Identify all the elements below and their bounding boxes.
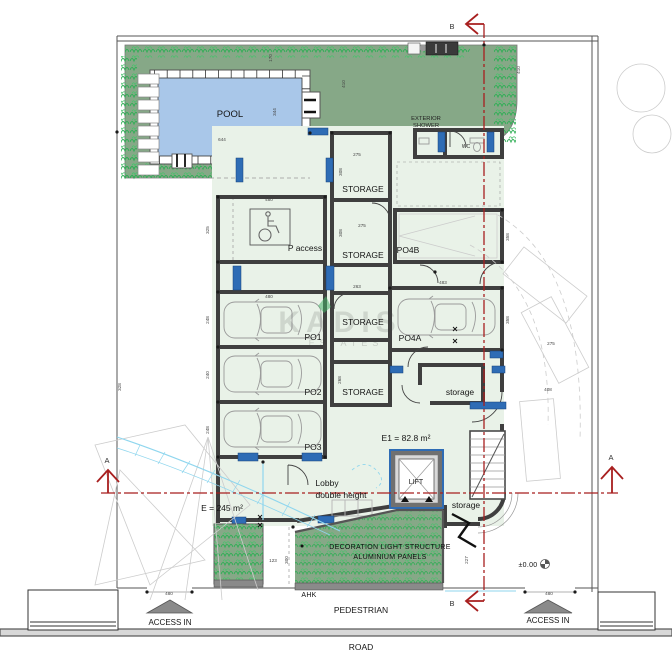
dimension-label: 268	[337, 376, 342, 384]
room-label-storage-small: storage	[446, 387, 475, 397]
dimension-label: 248	[205, 426, 210, 434]
dimension-label: 328	[117, 383, 122, 391]
level-label: ±0.00	[519, 562, 538, 569]
dimension-label: 308	[338, 229, 343, 237]
floor-plan-canvas: KADIS ESTATES POOL EXTERIOR SHOWER WC ST…	[0, 0, 672, 654]
dimension-label: 308	[338, 168, 343, 176]
ahk-label: AHK	[301, 592, 316, 599]
dimension-label: 410	[516, 66, 521, 74]
room-label-lobby-2: double height	[315, 490, 367, 500]
room-label-po4b: PO4B	[397, 245, 420, 255]
dimension-label: 358	[505, 233, 510, 241]
planter-left	[214, 524, 263, 587]
area-label-e: E = 245 m²	[201, 503, 243, 513]
decoration-label-2: ALUMINIUM PANELS	[353, 554, 426, 561]
room-label-pool: POOL	[217, 109, 243, 120]
room-label-lobby-1: Lobby	[315, 478, 339, 488]
dimension-label: 123	[269, 558, 277, 563]
dimension-label: 344	[272, 108, 277, 116]
room-label-exterior-shower-1: EXTERIOR	[411, 116, 441, 122]
dimension-label: 410	[341, 80, 346, 88]
section-label-b-top: B	[449, 22, 454, 31]
dimension-label: 325	[205, 226, 210, 234]
room-label-p-access: P access	[288, 243, 322, 253]
dimension-label: 644	[218, 137, 226, 142]
sidewalk-block-right	[598, 592, 655, 630]
staircase	[470, 431, 505, 499]
dimension-label: 263	[353, 284, 361, 289]
dimension-label: 483	[439, 280, 447, 285]
plot-boundary-right	[592, 36, 598, 592]
access-arrow-left	[147, 600, 192, 613]
dimension-label: 275	[358, 223, 366, 228]
dimension-label: 275	[547, 341, 555, 346]
dimension-label: 480	[265, 197, 273, 202]
tree-canopy-icon	[633, 115, 671, 153]
road-label: ROAD	[349, 642, 374, 652]
room-label-storage-2: STORAGE	[342, 250, 384, 260]
dimension-label: 275	[353, 152, 361, 157]
dimension-label: 408	[544, 387, 552, 392]
access-in-label-right: ACCESS IN	[526, 616, 569, 625]
sidewalk-block-left	[28, 590, 118, 630]
leader-dot	[301, 545, 304, 548]
pool-ladder	[172, 154, 192, 168]
room-label-storage-3: STORAGE	[342, 317, 384, 327]
dimension-label: 248	[205, 316, 210, 324]
room-label-storage-4: STORAGE	[342, 387, 384, 397]
area-label-e1: E1 = 82.8 m²	[382, 433, 431, 443]
tree-canopy-icon	[617, 64, 665, 112]
dimension-label: 227	[464, 556, 469, 564]
access-arrow-right	[525, 600, 572, 613]
access-in-label-left: ACCESS IN	[148, 618, 191, 627]
room-label-po4a: PO4A	[399, 333, 422, 343]
section-label-b-bottom: B	[449, 599, 454, 608]
section-label-a-right: A	[608, 453, 613, 462]
dimension-label: 170	[268, 54, 273, 62]
dimension-label: 358	[505, 316, 510, 324]
decoration-label-1: DECORATION LIGHT STRUCTURE	[329, 544, 451, 551]
garden-bench	[408, 42, 458, 55]
room-label-storage-entry: storage	[452, 500, 481, 510]
floor-plan-drawing: KADIS ESTATES POOL EXTERIOR SHOWER WC ST…	[0, 0, 672, 654]
dimension-label: 480	[165, 591, 173, 596]
room-label-lift: LIFT	[409, 479, 424, 486]
section-label-a-left: A	[104, 456, 109, 465]
dimension-label: 300	[284, 556, 289, 564]
room-label-po3: PO3	[304, 442, 321, 452]
room-label-po1: PO1	[304, 332, 321, 342]
pedestrian-label: PEDESTRIAN	[334, 605, 388, 615]
plot-boundary-top	[117, 36, 598, 41]
dimension-label: 480	[545, 591, 553, 596]
room-label-po2: PO2	[304, 387, 321, 397]
room-label-wc: WC	[462, 144, 471, 150]
pool-steps	[302, 92, 320, 118]
dimension-label: 240	[205, 371, 210, 379]
level-marker	[541, 560, 550, 569]
room-label-exterior-shower-2: SHOWER	[413, 123, 439, 129]
room-label-storage-1: STORAGE	[342, 184, 384, 194]
dimension-label: 480	[265, 294, 273, 299]
